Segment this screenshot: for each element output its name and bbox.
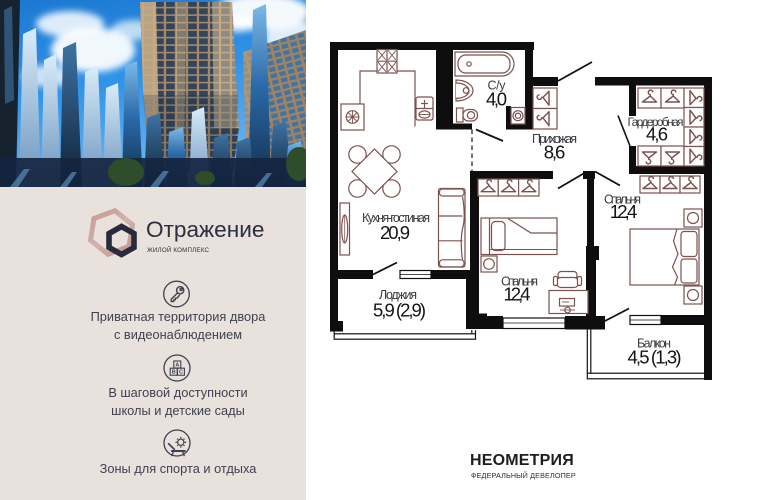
svg-text:20,9: 20,9 [380, 222, 410, 243]
svg-text:5,9 (2,9): 5,9 (2,9) [373, 300, 426, 321]
svg-text:12,4: 12,4 [610, 201, 638, 222]
svg-text:12,4: 12,4 [504, 284, 531, 305]
svg-text:8,6: 8,6 [544, 142, 566, 163]
svg-text:4,5 (1,3): 4,5 (1,3) [628, 347, 682, 368]
svg-text:4,0: 4,0 [486, 89, 507, 110]
svg-text:4,6: 4,6 [646, 124, 668, 145]
